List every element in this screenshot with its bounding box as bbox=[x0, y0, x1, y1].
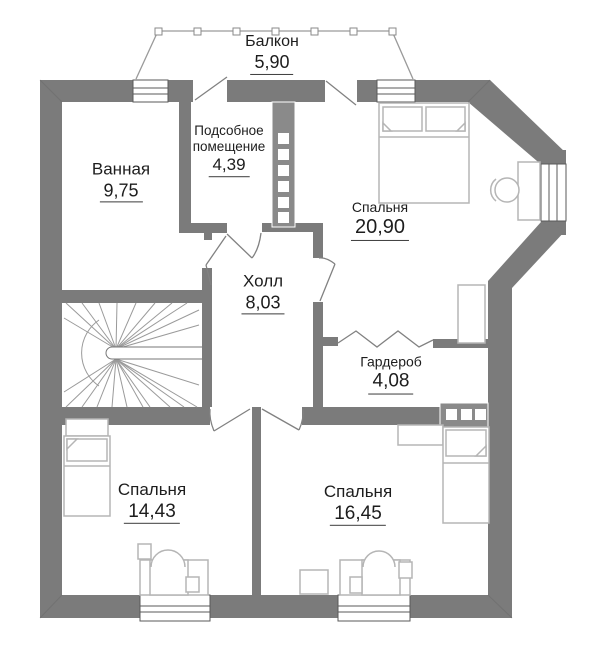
door-hall-bedroom3 bbox=[262, 409, 303, 430]
room-name: Балкон bbox=[245, 33, 299, 51]
room-label-bathroom: Ванная 9,75 bbox=[92, 159, 150, 202]
room-label-wardrobe: Гардероб 4,08 bbox=[360, 354, 422, 395]
door-balcony-utility bbox=[195, 77, 227, 100]
wall-hall-right bbox=[313, 302, 323, 407]
room-area: 4,39 bbox=[208, 155, 249, 177]
room-name: Гардероб bbox=[360, 354, 422, 370]
wall-left bbox=[40, 80, 62, 612]
vent-shaft-top bbox=[272, 102, 295, 227]
room-area: 16,45 bbox=[330, 502, 386, 526]
door-utility-hall bbox=[227, 233, 261, 258]
door-hall-bedroom2 bbox=[210, 409, 250, 431]
room-name: Спальня bbox=[351, 199, 409, 215]
wall-utility-bottom bbox=[179, 223, 227, 233]
wall-stairs-top bbox=[62, 290, 212, 303]
room-label-bedroom2: Спальня 14,43 bbox=[118, 480, 186, 524]
room-name: Подсобное bbox=[193, 123, 266, 139]
bed-bedroom1 bbox=[379, 103, 469, 203]
wall-bathroom-right bbox=[179, 102, 191, 223]
room-label-utility: Подсобное помещение 4,39 bbox=[193, 123, 266, 177]
room-name: Ванная bbox=[92, 159, 150, 179]
room-area: 20,90 bbox=[351, 216, 409, 241]
cabinet-bedroom1 bbox=[458, 285, 485, 343]
vent-shaft-bottom bbox=[440, 403, 488, 427]
desk-bay bbox=[518, 162, 540, 220]
door-balcony-bedroom1 bbox=[326, 81, 356, 105]
wall-chamfer-bottom bbox=[488, 222, 566, 288]
wall-hall-left bbox=[202, 268, 212, 407]
stool-bay bbox=[491, 178, 519, 202]
desk-chair-bedroom2 bbox=[138, 544, 208, 595]
room-area: 14,43 bbox=[124, 500, 180, 524]
room-name: Холл bbox=[241, 271, 284, 291]
room-area: 5,90 bbox=[250, 52, 293, 75]
room-name: Спальня bbox=[324, 482, 392, 502]
window-bathroom-top bbox=[133, 80, 168, 102]
room-label-balcony: Балкон 5,90 bbox=[245, 33, 299, 75]
floor-plan: Балкон 5,90 Ванная 9,75 Подсобное помеще… bbox=[0, 0, 600, 649]
desk-chair-bedroom3 bbox=[340, 551, 412, 595]
shelf-bedroom3 bbox=[398, 425, 443, 445]
door-hall-bedroom1 bbox=[319, 258, 335, 301]
window-bay-right bbox=[541, 164, 566, 221]
room-area: 8,03 bbox=[241, 292, 284, 315]
window-bedroom3-bottom bbox=[338, 595, 410, 621]
room-area: 4,08 bbox=[369, 371, 414, 395]
room-area: 9,75 bbox=[99, 180, 142, 203]
wall-bedroom-partition bbox=[252, 407, 261, 595]
floor-plan-drawing bbox=[0, 0, 600, 649]
bed-bedroom3 bbox=[443, 427, 489, 523]
door-hall-bathroom bbox=[206, 236, 226, 285]
room-name: помещение bbox=[193, 139, 266, 155]
wall-right bbox=[488, 281, 512, 618]
nightstand-bedroom3 bbox=[300, 570, 328, 594]
room-label-hall: Холл 8,03 bbox=[241, 271, 284, 314]
shelf-bedroom2 bbox=[66, 419, 108, 436]
room-name: Спальня bbox=[118, 480, 186, 500]
window-bedroom1-top bbox=[377, 80, 415, 102]
room-label-bedroom1: Спальня 20,90 bbox=[351, 199, 409, 241]
staircase bbox=[64, 303, 202, 407]
room-label-bedroom3: Спальня 16,45 bbox=[324, 482, 392, 526]
window-bedroom2-bottom bbox=[140, 595, 210, 621]
door-wardrobe-folding bbox=[338, 331, 433, 347]
bed-bedroom2 bbox=[64, 436, 110, 516]
